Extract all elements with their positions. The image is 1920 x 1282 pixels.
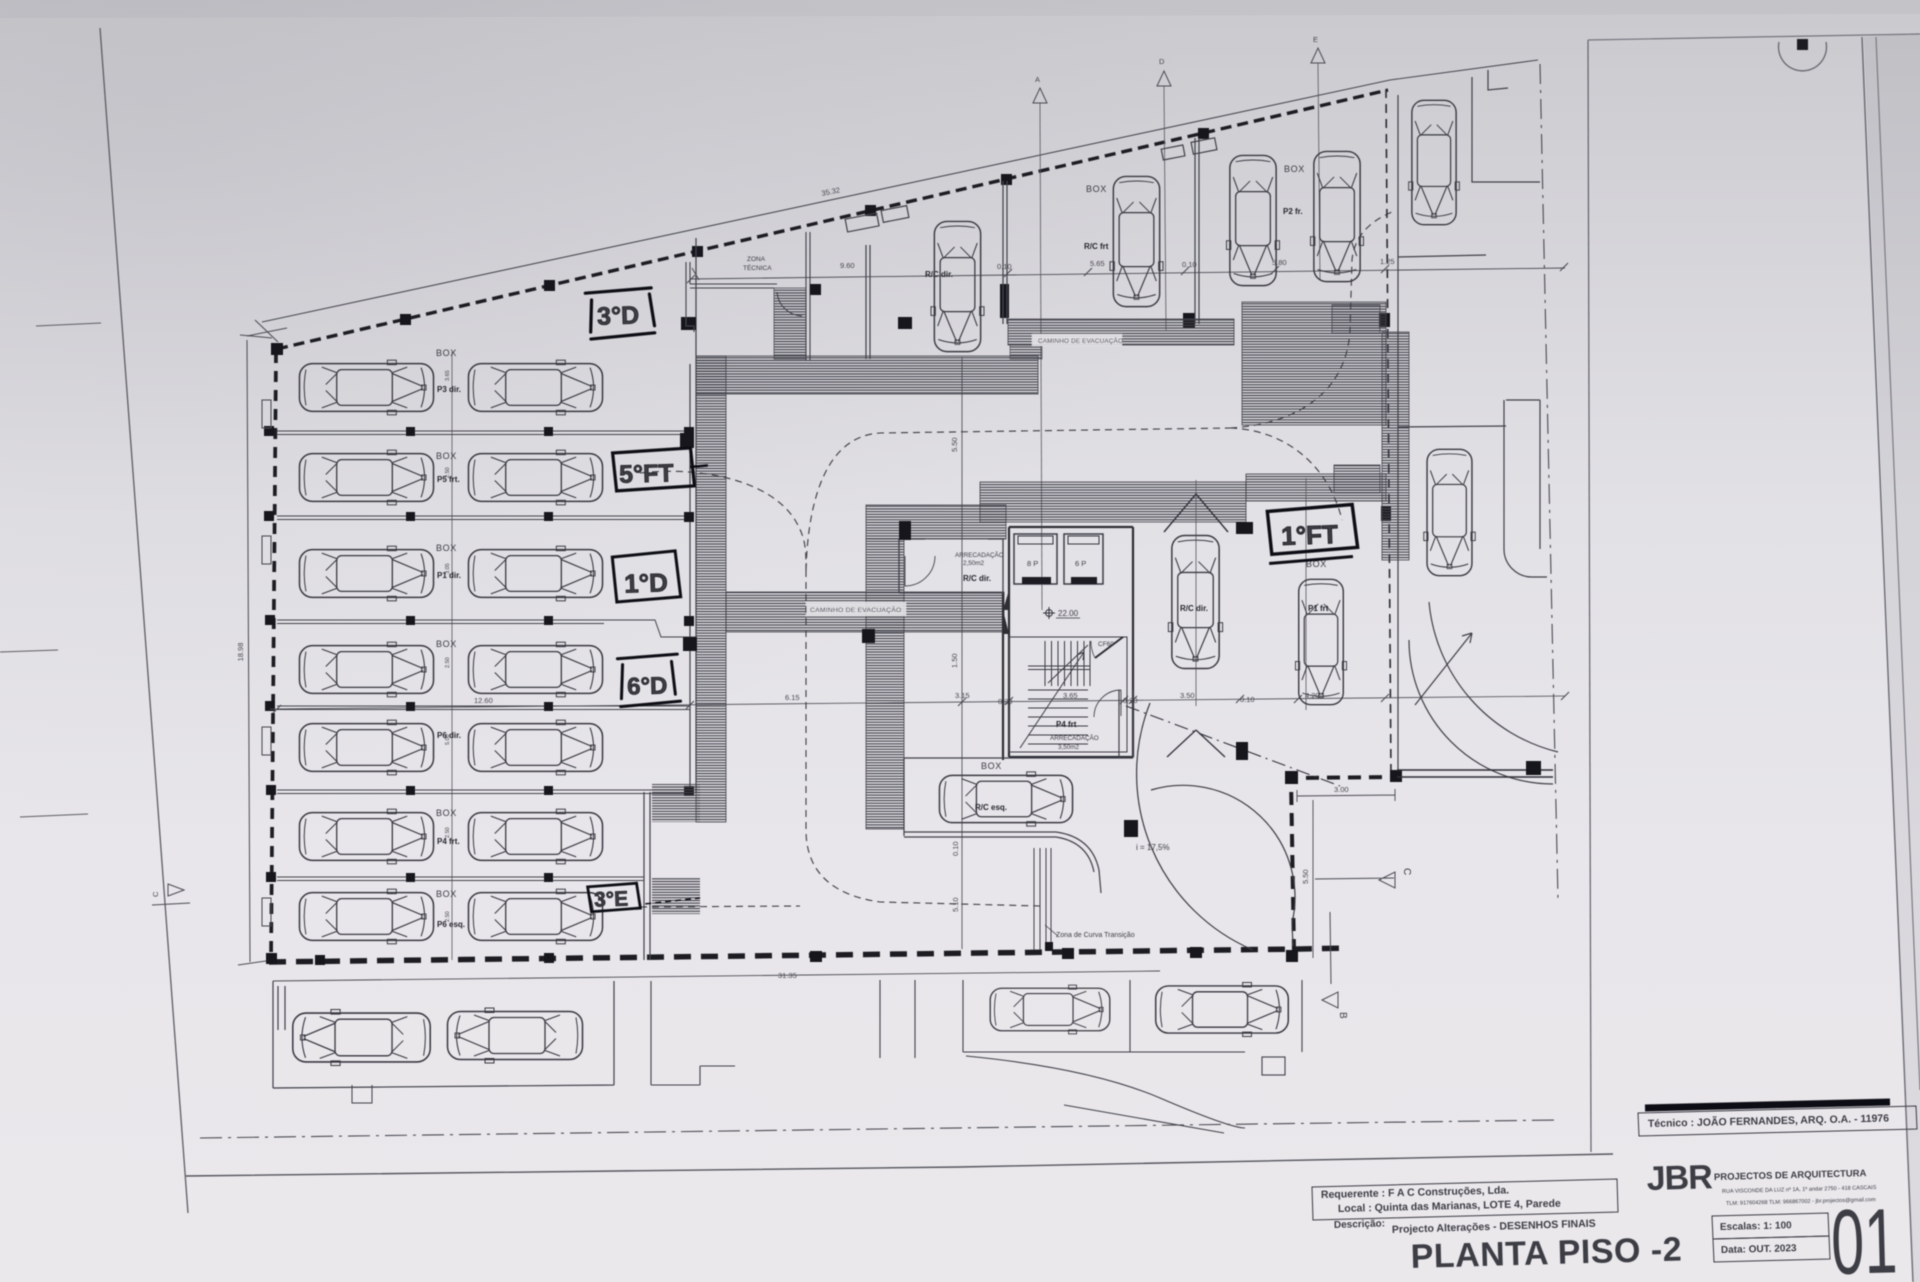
svg-text:1.25: 1.25: [1380, 257, 1395, 266]
svg-text:PLANTA PISO -2: PLANTA PISO -2: [1410, 1230, 1682, 1276]
svg-text:ARRECADAÇÃO: ARRECADAÇÃO: [1050, 733, 1099, 742]
svg-text:31.35: 31.35: [778, 971, 797, 980]
svg-text:P4 frt.: P4 frt.: [437, 837, 460, 846]
svg-text:12.60: 12.60: [474, 696, 493, 705]
svg-text:P6 esq.: P6 esq.: [437, 920, 465, 929]
svg-text:P4 frt: P4 frt: [1056, 720, 1077, 729]
svg-text:R/C esq.: R/C esq.: [975, 803, 1007, 812]
svg-text:TÉCNICA: TÉCNICA: [743, 263, 772, 272]
svg-text:BOX: BOX: [436, 348, 457, 358]
svg-text:0.10: 0.10: [951, 841, 960, 856]
svg-text:9.60: 9.60: [840, 261, 855, 270]
svg-text:1°FT: 1°FT: [1281, 519, 1339, 551]
svg-text:6.15: 6.15: [785, 693, 800, 702]
svg-text:5.10: 5.10: [951, 897, 960, 912]
svg-text:2.50: 2.50: [445, 657, 451, 668]
svg-text:22.00: 22.00: [1058, 609, 1079, 618]
svg-text:P1 frt: P1 frt: [1308, 604, 1329, 613]
svg-text:P1 dir.: P1 dir.: [437, 571, 461, 580]
svg-text:BOX: BOX: [436, 639, 457, 649]
svg-text:18.98: 18.98: [236, 643, 245, 662]
svg-text:CAMINHO DE EVACUAÇÃO: CAMINHO DE EVACUAÇÃO: [1038, 336, 1123, 345]
svg-text:3°D: 3°D: [597, 301, 640, 330]
svg-text:3.50: 3.50: [1180, 691, 1195, 700]
svg-text:Escalas: 1: 100: Escalas: 1: 100: [1720, 1220, 1792, 1233]
svg-text:5.65: 5.65: [1090, 259, 1105, 268]
svg-text:Zona de Curva Transição: Zona de Curva Transição: [1056, 932, 1135, 939]
svg-text:CAMINHO DE EVACUAÇÃO: CAMINHO DE EVACUAÇÃO: [810, 605, 902, 614]
svg-text:0.10: 0.10: [997, 262, 1012, 271]
svg-text:6°D: 6°D: [627, 672, 668, 700]
svg-text:CF60: CF60: [1098, 641, 1114, 648]
svg-text:Descrição:: Descrição:: [1334, 1218, 1385, 1231]
svg-text:5.50: 5.50: [1301, 869, 1310, 884]
svg-text:1°D: 1°D: [624, 567, 669, 599]
svg-text:P5 frt.: P5 frt.: [437, 475, 460, 484]
svg-text:B: B: [1337, 1012, 1348, 1019]
svg-text:6 P: 6 P: [1075, 559, 1086, 568]
svg-text:R/C frt: R/C frt: [1084, 242, 1109, 251]
svg-text:BOX: BOX: [436, 543, 457, 553]
svg-text:C: C: [151, 891, 160, 897]
svg-text:P2 fr.: P2 fr.: [1283, 207, 1303, 216]
svg-text:3.00: 3.00: [1334, 785, 1349, 794]
svg-text:BOX: BOX: [436, 889, 457, 899]
svg-text:5°FT: 5°FT: [619, 459, 674, 488]
svg-text:BOX: BOX: [436, 808, 457, 818]
svg-text:8 P: 8 P: [1027, 559, 1038, 568]
svg-text:3.65: 3.65: [445, 370, 451, 381]
svg-text:3°E: 3°E: [594, 887, 629, 911]
svg-text:BOX: BOX: [1086, 184, 1107, 194]
svg-text:Data: OUT. 2023: Data: OUT. 2023: [1721, 1243, 1797, 1256]
svg-text:P3 dir.: P3 dir.: [437, 385, 461, 394]
svg-text:1.50: 1.50: [950, 653, 959, 668]
svg-text:P6 dir.: P6 dir.: [437, 731, 461, 740]
svg-text:ARRECADAÇÃO: ARRECADAÇÃO: [955, 550, 1004, 559]
svg-text:5.50: 5.50: [950, 437, 959, 452]
svg-text:C: C: [1401, 868, 1412, 875]
svg-text:BOX: BOX: [1284, 164, 1305, 174]
svg-text:2,50m2: 2,50m2: [963, 560, 985, 567]
svg-text:3,50m2: 3,50m2: [1058, 744, 1080, 751]
svg-text:5.80: 5.80: [1272, 258, 1287, 267]
svg-text:R/C dir.: R/C dir.: [963, 574, 991, 583]
svg-text:ZONA: ZONA: [747, 256, 766, 263]
svg-text:01: 01: [1830, 1190, 1899, 1282]
svg-text:D: D: [1159, 57, 1165, 66]
svg-text:A: A: [1035, 75, 1040, 84]
svg-text:JBR: JBR: [1646, 1158, 1712, 1198]
svg-text:R/C dir.: R/C dir.: [1180, 604, 1208, 613]
svg-text:BOX: BOX: [436, 451, 457, 461]
svg-text:BOX: BOX: [981, 761, 1002, 771]
svg-text:E: E: [1313, 35, 1318, 44]
svg-text:R/C dir.: R/C dir.: [925, 270, 953, 279]
